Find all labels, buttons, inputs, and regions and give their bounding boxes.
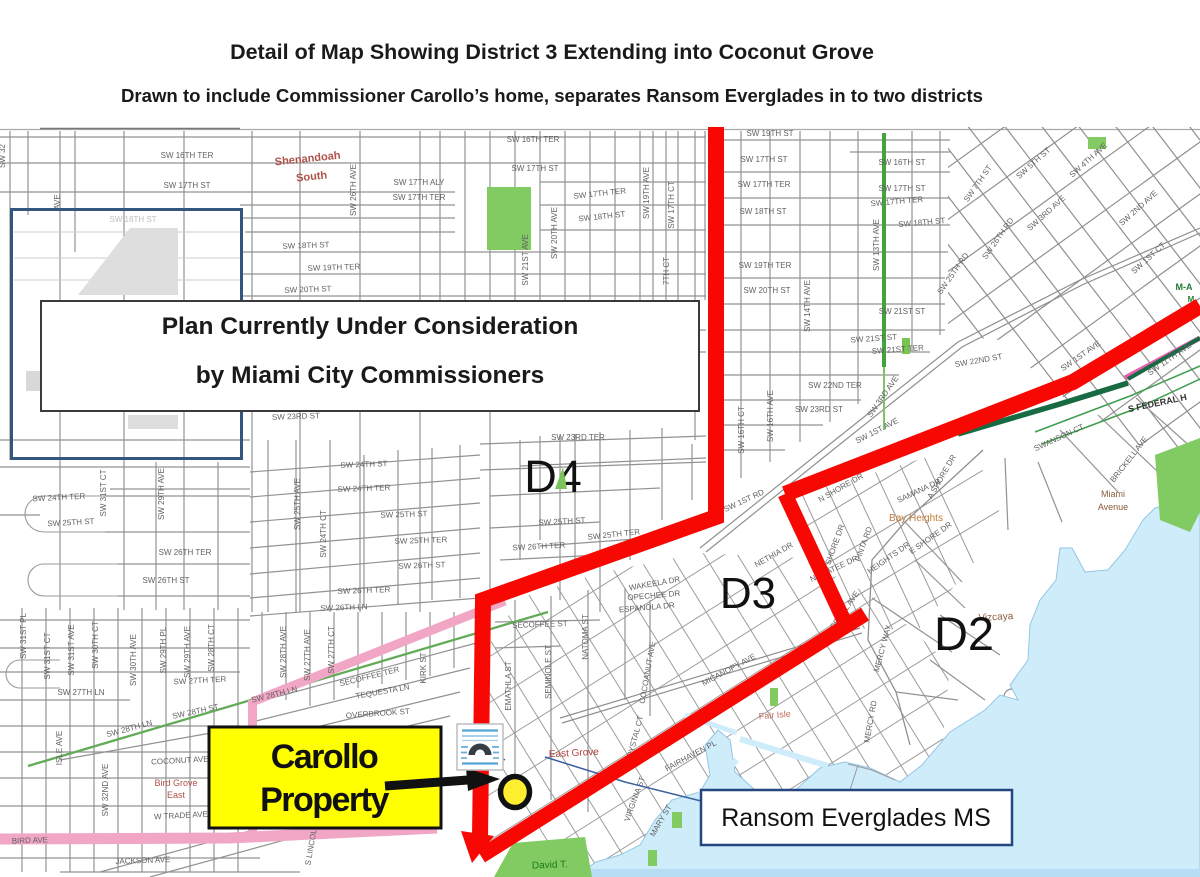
svg-text:EMATHLA ST: EMATHLA ST [504, 661, 513, 710]
svg-text:SW 26TH AVE: SW 26TH AVE [349, 164, 358, 216]
svg-text:SW 16TH TER: SW 16TH TER [161, 151, 214, 160]
svg-text:SW 32: SW 32 [0, 143, 7, 168]
svg-text:M-A: M-A [1176, 282, 1193, 292]
svg-text:SW 23RD TER: SW 23RD TER [551, 433, 605, 442]
svg-text:7TH CT: 7TH CT [662, 257, 671, 285]
svg-text:SW 29TH AVE: SW 29TH AVE [157, 468, 166, 520]
svg-text:SW 21ST ST: SW 21ST ST [879, 307, 926, 316]
svg-text:SW 23RD ST: SW 23RD ST [272, 411, 320, 422]
svg-text:SW 20TH AVE: SW 20TH AVE [550, 207, 559, 259]
svg-text:D4: D4 [524, 451, 582, 502]
svg-text:SW 29TH AVE: SW 29TH AVE [183, 626, 192, 678]
svg-text:SW 27TH AVE: SW 27TH AVE [303, 629, 312, 681]
svg-text:SW 17TH ST: SW 17TH ST [878, 184, 925, 193]
svg-text:SW 26TH ST: SW 26TH ST [398, 560, 446, 571]
svg-text:Avenue: Avenue [1098, 502, 1128, 512]
svg-text:SW 24TH TER: SW 24TH TER [337, 483, 390, 494]
svg-text:SW 17TH ST: SW 17TH ST [511, 164, 558, 173]
svg-text:SW 17TH ALY: SW 17TH ALY [394, 178, 446, 187]
svg-text:D3: D3 [720, 569, 776, 618]
svg-text:SW 26TH LN: SW 26TH LN [320, 602, 368, 613]
svg-text:East: East [167, 790, 186, 800]
svg-text:SW 30TH CT: SW 30TH CT [91, 621, 100, 669]
svg-text:SW 31ST AVE: SW 31ST AVE [67, 624, 76, 675]
svg-text:SW 29TH PL: SW 29TH PL [159, 626, 168, 673]
svg-text:David T.: David T. [532, 859, 568, 871]
svg-text:SW 26TH TER: SW 26TH TER [159, 548, 212, 557]
svg-text:Bay Heights: Bay Heights [889, 513, 943, 524]
svg-text:SW 30TH AVE: SW 30TH AVE [129, 634, 138, 686]
svg-text:JACKSON AVE: JACKSON AVE [115, 855, 170, 866]
svg-text:SW 13TH AVE: SW 13TH AVE [872, 219, 881, 271]
svg-text:SW 16TH TER: SW 16TH TER [507, 135, 560, 144]
svg-text:SW 18TH ST: SW 18TH ST [739, 207, 786, 216]
svg-text:SW 18TH ST: SW 18TH ST [282, 240, 330, 251]
svg-text:SEMINOLE ST: SEMINOLE ST [544, 645, 553, 699]
svg-text:SW 23RD ST: SW 23RD ST [795, 405, 843, 414]
svg-text:D2: D2 [934, 607, 994, 660]
svg-text:ISLE AVE: ISLE AVE [55, 731, 64, 766]
svg-text:SW 17TH ST: SW 17TH ST [740, 155, 787, 164]
svg-text:AVE: AVE [53, 194, 62, 209]
svg-text:Carollo: Carollo [271, 738, 378, 776]
svg-text:SW 24TH CT: SW 24TH CT [319, 510, 328, 558]
svg-text:SW 16TH CT: SW 16TH CT [737, 406, 746, 454]
svg-text:Bird Grove: Bird Grove [154, 778, 197, 788]
svg-text:SW 17TH CT: SW 17TH CT [667, 181, 676, 229]
svg-text:by Miami City Commissioners: by Miami City Commissioners [196, 362, 545, 389]
svg-text:SW 24TH ST: SW 24TH ST [340, 459, 388, 470]
svg-text:SW 26TH ST: SW 26TH ST [142, 576, 189, 585]
svg-text:SW 19TH TER: SW 19TH TER [307, 262, 360, 273]
svg-text:SW 17TH TER: SW 17TH TER [738, 180, 791, 189]
svg-text:SW 32ND AVE: SW 32ND AVE [101, 764, 110, 817]
svg-text:Miami: Miami [1101, 489, 1125, 499]
svg-text:SW 17TH ST: SW 17TH ST [163, 181, 210, 190]
svg-text:BIRD AVE: BIRD AVE [12, 835, 49, 845]
svg-text:SW 17TH TER: SW 17TH TER [393, 193, 446, 202]
svg-text:Property: Property [260, 781, 389, 819]
svg-text:SW 28TH AVE: SW 28TH AVE [279, 626, 288, 678]
svg-text:SW 22ND TER: SW 22ND TER [808, 381, 862, 390]
svg-text:SW 20TH ST: SW 20TH ST [284, 284, 332, 295]
svg-text:SW 27TH LN: SW 27TH LN [57, 688, 104, 697]
svg-text:KIRK ST: KIRK ST [419, 652, 428, 683]
svg-text:SW 26TH TER: SW 26TH TER [337, 585, 390, 596]
svg-text:SW 14TH AVE: SW 14TH AVE [803, 280, 812, 332]
svg-text:SW 16TH ST: SW 16TH ST [878, 158, 925, 167]
svg-text:SW 31ST CT: SW 31ST CT [99, 469, 108, 516]
svg-text:SW 25TH ST: SW 25TH ST [380, 509, 428, 520]
svg-text:SW 31ST CT: SW 31ST CT [43, 632, 52, 679]
svg-text:SW 28TH CT: SW 28TH CT [207, 624, 216, 672]
svg-text:SW 27TH CT: SW 27TH CT [327, 626, 336, 674]
svg-text:SW 20TH ST: SW 20TH ST [743, 286, 790, 295]
svg-text:Plan Currently Under Considera: Plan Currently Under Consideration [162, 313, 579, 340]
svg-text:SW 19TH TER: SW 19TH TER [739, 261, 792, 270]
svg-text:SW 19TH ST: SW 19TH ST [746, 129, 793, 138]
svg-text:SW 25TH TER: SW 25TH TER [394, 535, 447, 546]
svg-text:SW 21ST AVE: SW 21ST AVE [521, 234, 530, 285]
svg-text:SW 19TH AVE: SW 19TH AVE [642, 167, 651, 219]
svg-text:SW 25TH AVE: SW 25TH AVE [293, 478, 302, 530]
svg-text:Ransom Everglades MS: Ransom Everglades MS [721, 804, 991, 832]
svg-text:NATOMA ST: NATOMA ST [581, 614, 590, 660]
svg-text:SW 31ST PL: SW 31ST PL [19, 612, 28, 659]
svg-text:SW 18TH ST: SW 18TH ST [109, 215, 156, 224]
svg-text:SW 16TH AVE: SW 16TH AVE [766, 390, 775, 442]
